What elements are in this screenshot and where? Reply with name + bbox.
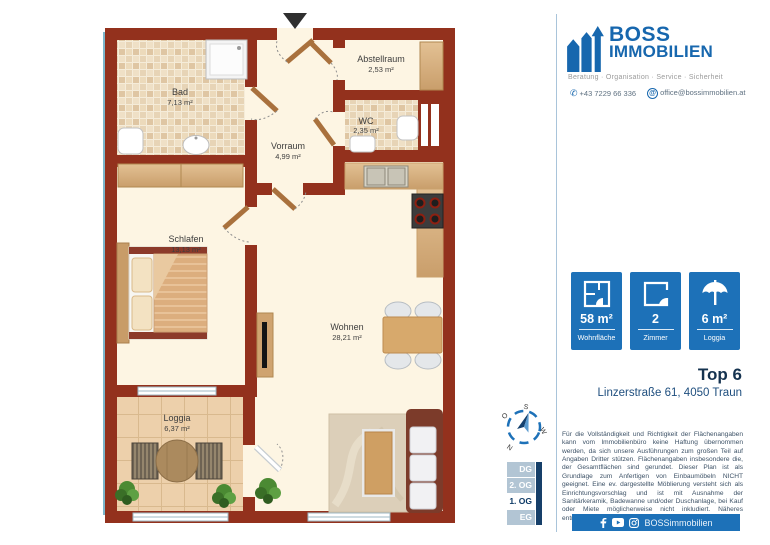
compass-icon: S W N O xyxy=(501,404,547,451)
bed xyxy=(117,243,207,343)
stove xyxy=(412,194,443,228)
room-icon xyxy=(641,279,671,309)
floor-2og: 2. OG xyxy=(507,478,535,493)
phone-entry: ✆+43 7229 66 336 xyxy=(570,88,636,99)
property-block: Top 6 Linzerstraße 61, 4050 Traun xyxy=(598,365,742,399)
logo-name-line2: IMMOBILIEN xyxy=(609,44,713,60)
stat-label: Zimmer xyxy=(643,333,667,342)
youtube-icon xyxy=(612,518,624,527)
room-area-wohnen: 28,21 m² xyxy=(332,333,362,342)
instagram-icon xyxy=(629,518,639,528)
room-label-loggia: Loggia xyxy=(163,413,190,423)
sidebar-divider xyxy=(556,14,557,532)
email-entry: @office@bossimmobilien.at xyxy=(647,88,745,99)
phone-number: +43 7229 66 336 xyxy=(580,89,637,98)
contact-row: ✆+43 7229 66 336 @office@bossimmobilien.… xyxy=(570,88,746,99)
social-handle: BOSSimmobilien xyxy=(644,518,712,528)
room-label-vorraum: Vorraum xyxy=(271,141,305,151)
floor-selector-bar xyxy=(536,462,542,525)
disclaimer-text: Für die Vollständigkeit und Richtigkeit … xyxy=(562,431,743,523)
room-label-wc: WC xyxy=(359,116,374,126)
room-label-abstellraum: Abstellraum xyxy=(357,54,405,64)
property-title: Top 6 xyxy=(598,365,742,385)
tv xyxy=(262,322,267,368)
flyer-page: Bad 7,13 m² Abstellraum 2,53 m² WC 2,35 … xyxy=(0,0,770,545)
social-footer-bar: BOSSimmobilien xyxy=(572,514,740,531)
loggia-chair xyxy=(196,443,222,479)
mail-icon: @ xyxy=(647,88,658,99)
room-label-schlafen: Schlafen xyxy=(168,234,203,244)
compass-n: N xyxy=(506,442,514,451)
umbrella-icon xyxy=(700,279,730,309)
entrance-arrow-icon xyxy=(283,13,307,29)
shower-drain xyxy=(237,46,241,50)
floor-dg: DG xyxy=(507,462,535,477)
loggia-table xyxy=(156,440,198,482)
room-label-wohnen: Wohnen xyxy=(330,322,363,332)
floor-eg: EG xyxy=(507,510,535,525)
stat-zimmer: 2 Zimmer xyxy=(630,272,681,350)
loggia-chair xyxy=(132,443,158,479)
dining-table xyxy=(383,317,442,353)
floor-selector: DG 2. OG 1. OG EG xyxy=(507,462,542,526)
stat-label: Wohnfläche xyxy=(578,333,616,342)
room-area-schlafen: 13,13 m² xyxy=(171,245,201,254)
logo-tagline: Beratung · Organisation · Service · Sich… xyxy=(568,74,743,81)
toilet xyxy=(118,128,143,154)
compass-s: S xyxy=(523,404,529,412)
stat-wohnflaeche: 58 m² Wohnfläche xyxy=(571,272,622,350)
stat-loggia: 6 m² Loggia xyxy=(689,272,740,350)
room-area-wc: 2,35 m² xyxy=(353,126,379,135)
property-address: Linzerstraße 61, 4050 Traun xyxy=(598,387,742,399)
stat-label: Loggia xyxy=(704,333,726,342)
logo-buildings-icon xyxy=(567,25,604,72)
living-area xyxy=(329,409,443,513)
stat-value: 6 m² xyxy=(702,312,728,326)
room-area-bad: 7,13 m² xyxy=(167,98,193,107)
floor-1og-active: 1. OG xyxy=(507,494,535,509)
tv-sideboard xyxy=(257,313,273,377)
company-logo: BOSS IMMOBILIEN xyxy=(567,25,713,72)
room-area-abstellraum: 2,53 m² xyxy=(368,65,394,74)
email-address: office@bossimmobilien.at xyxy=(660,88,745,97)
floorplan-icon xyxy=(582,279,612,309)
room-area-vorraum: 4,99 m² xyxy=(275,152,301,161)
phone-icon: ✆ xyxy=(570,88,578,98)
storage-cabinet xyxy=(420,42,443,90)
toilet xyxy=(397,116,418,140)
stat-value: 2 xyxy=(652,312,659,326)
sofa xyxy=(406,409,443,513)
sink xyxy=(350,136,375,152)
facebook-icon xyxy=(599,518,607,528)
room-label-bad: Bad xyxy=(172,87,188,97)
stat-value: 58 m² xyxy=(580,312,613,326)
room-area-loggia: 6,37 m² xyxy=(164,424,190,433)
stat-boxes: 58 m² Wohnfläche 2 Zimmer 6 m² Loggia xyxy=(571,272,740,350)
